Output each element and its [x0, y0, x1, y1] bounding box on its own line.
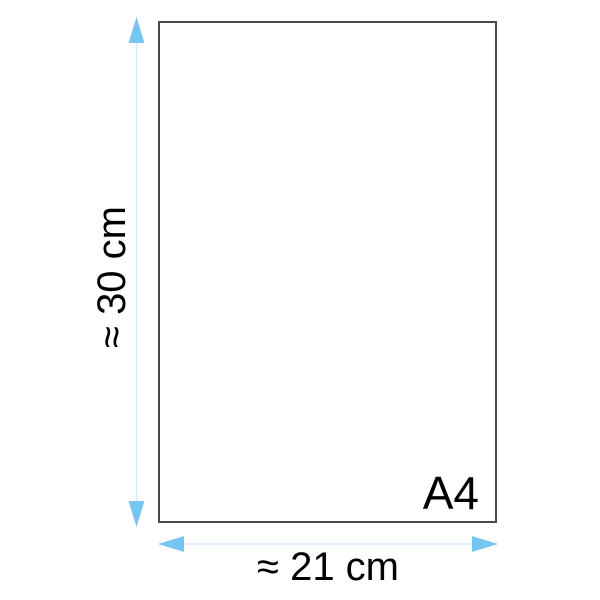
width-dimension-label: ≈ 21 cm — [208, 547, 448, 587]
a4-paper-outline: A4 — [158, 21, 497, 523]
arrow-down-icon — [129, 501, 145, 527]
paper-size-label: A4 — [423, 468, 479, 519]
arrow-right-icon — [472, 536, 498, 552]
arrow-up-icon — [129, 17, 145, 43]
height-dimension-label: ≈ 30 cm — [92, 157, 132, 397]
a4-size-diagram: A4 ≈ 30 cm ≈ 21 cm — [0, 0, 600, 600]
arrow-left-icon — [158, 536, 184, 552]
